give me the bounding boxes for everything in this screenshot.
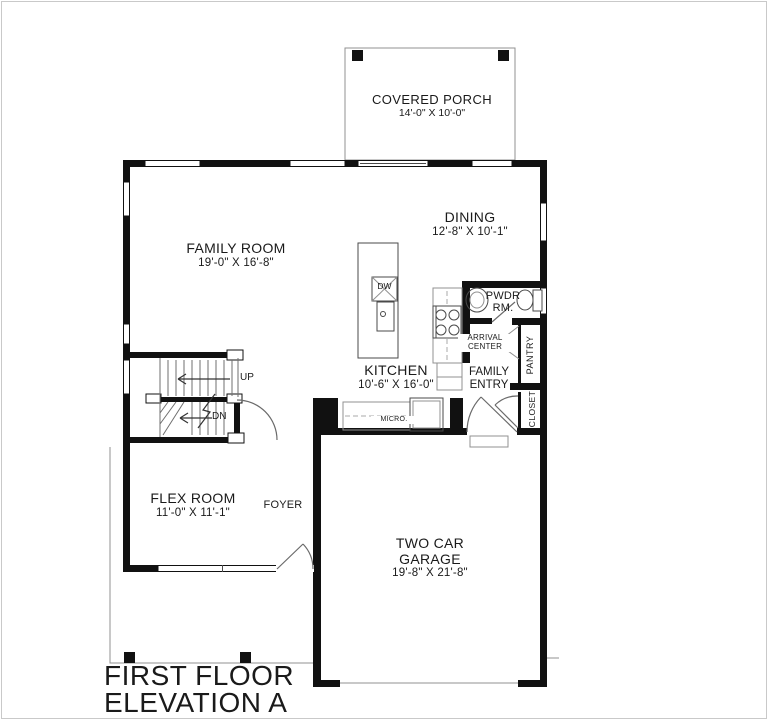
refrigerator	[410, 398, 443, 431]
dishwasher-label: DW	[372, 282, 397, 292]
room-label-closet: CLOSET	[527, 379, 537, 439]
room-label-family-room: FAMILY ROOM 19'-0" X 16'-8"	[146, 241, 326, 270]
stair-treads-up	[168, 360, 232, 396]
range	[433, 306, 461, 338]
porch-post	[498, 50, 509, 61]
floor-plan-page: COVERED PORCH 14'-0" X 10'-0" FAMILY ROO…	[0, 0, 768, 720]
room-label-garage: TWO CAR GARAGE 19'-8" X 21'-8"	[368, 536, 492, 580]
up-arrow	[178, 374, 230, 384]
kitchen-fixtures	[343, 243, 462, 431]
room-label-covered-porch: COVERED PORCH 14'-0" X 10'-0"	[347, 93, 517, 119]
island-sink	[377, 302, 394, 331]
room-label-arrival-center: ARRIVAL CENTER	[458, 334, 512, 352]
room-label-pantry: PANTRY	[525, 325, 535, 385]
dining-window	[541, 203, 547, 241]
room-label-foyer: FOYER	[255, 499, 311, 511]
room-label-kitchen: KITCHEN 10'-6" X 16'-0"	[334, 363, 458, 392]
closet-door	[495, 396, 518, 428]
front-door-opening	[276, 565, 314, 572]
doors	[237, 302, 519, 683]
garage-entry-door	[467, 397, 517, 447]
porch-post	[352, 50, 363, 61]
plan-title: FIRST FLOOR ELEVATION A	[104, 662, 294, 716]
garage-step	[470, 436, 508, 447]
room-label-dining: DINING 12'-8" X 10'-1"	[408, 210, 532, 239]
room-label-family-entry: FAMILY ENTRY	[457, 366, 521, 392]
stairs-down-label: DN	[212, 411, 226, 422]
room-label-powder: PWDR RM.	[481, 290, 525, 315]
stairs-up-label: UP	[240, 372, 254, 383]
microwave-label: MICRO.	[371, 416, 417, 424]
down-arrow	[180, 413, 212, 423]
room-label-flex-room: FLEX ROOM 11'-0" X 11'-1"	[131, 491, 255, 520]
